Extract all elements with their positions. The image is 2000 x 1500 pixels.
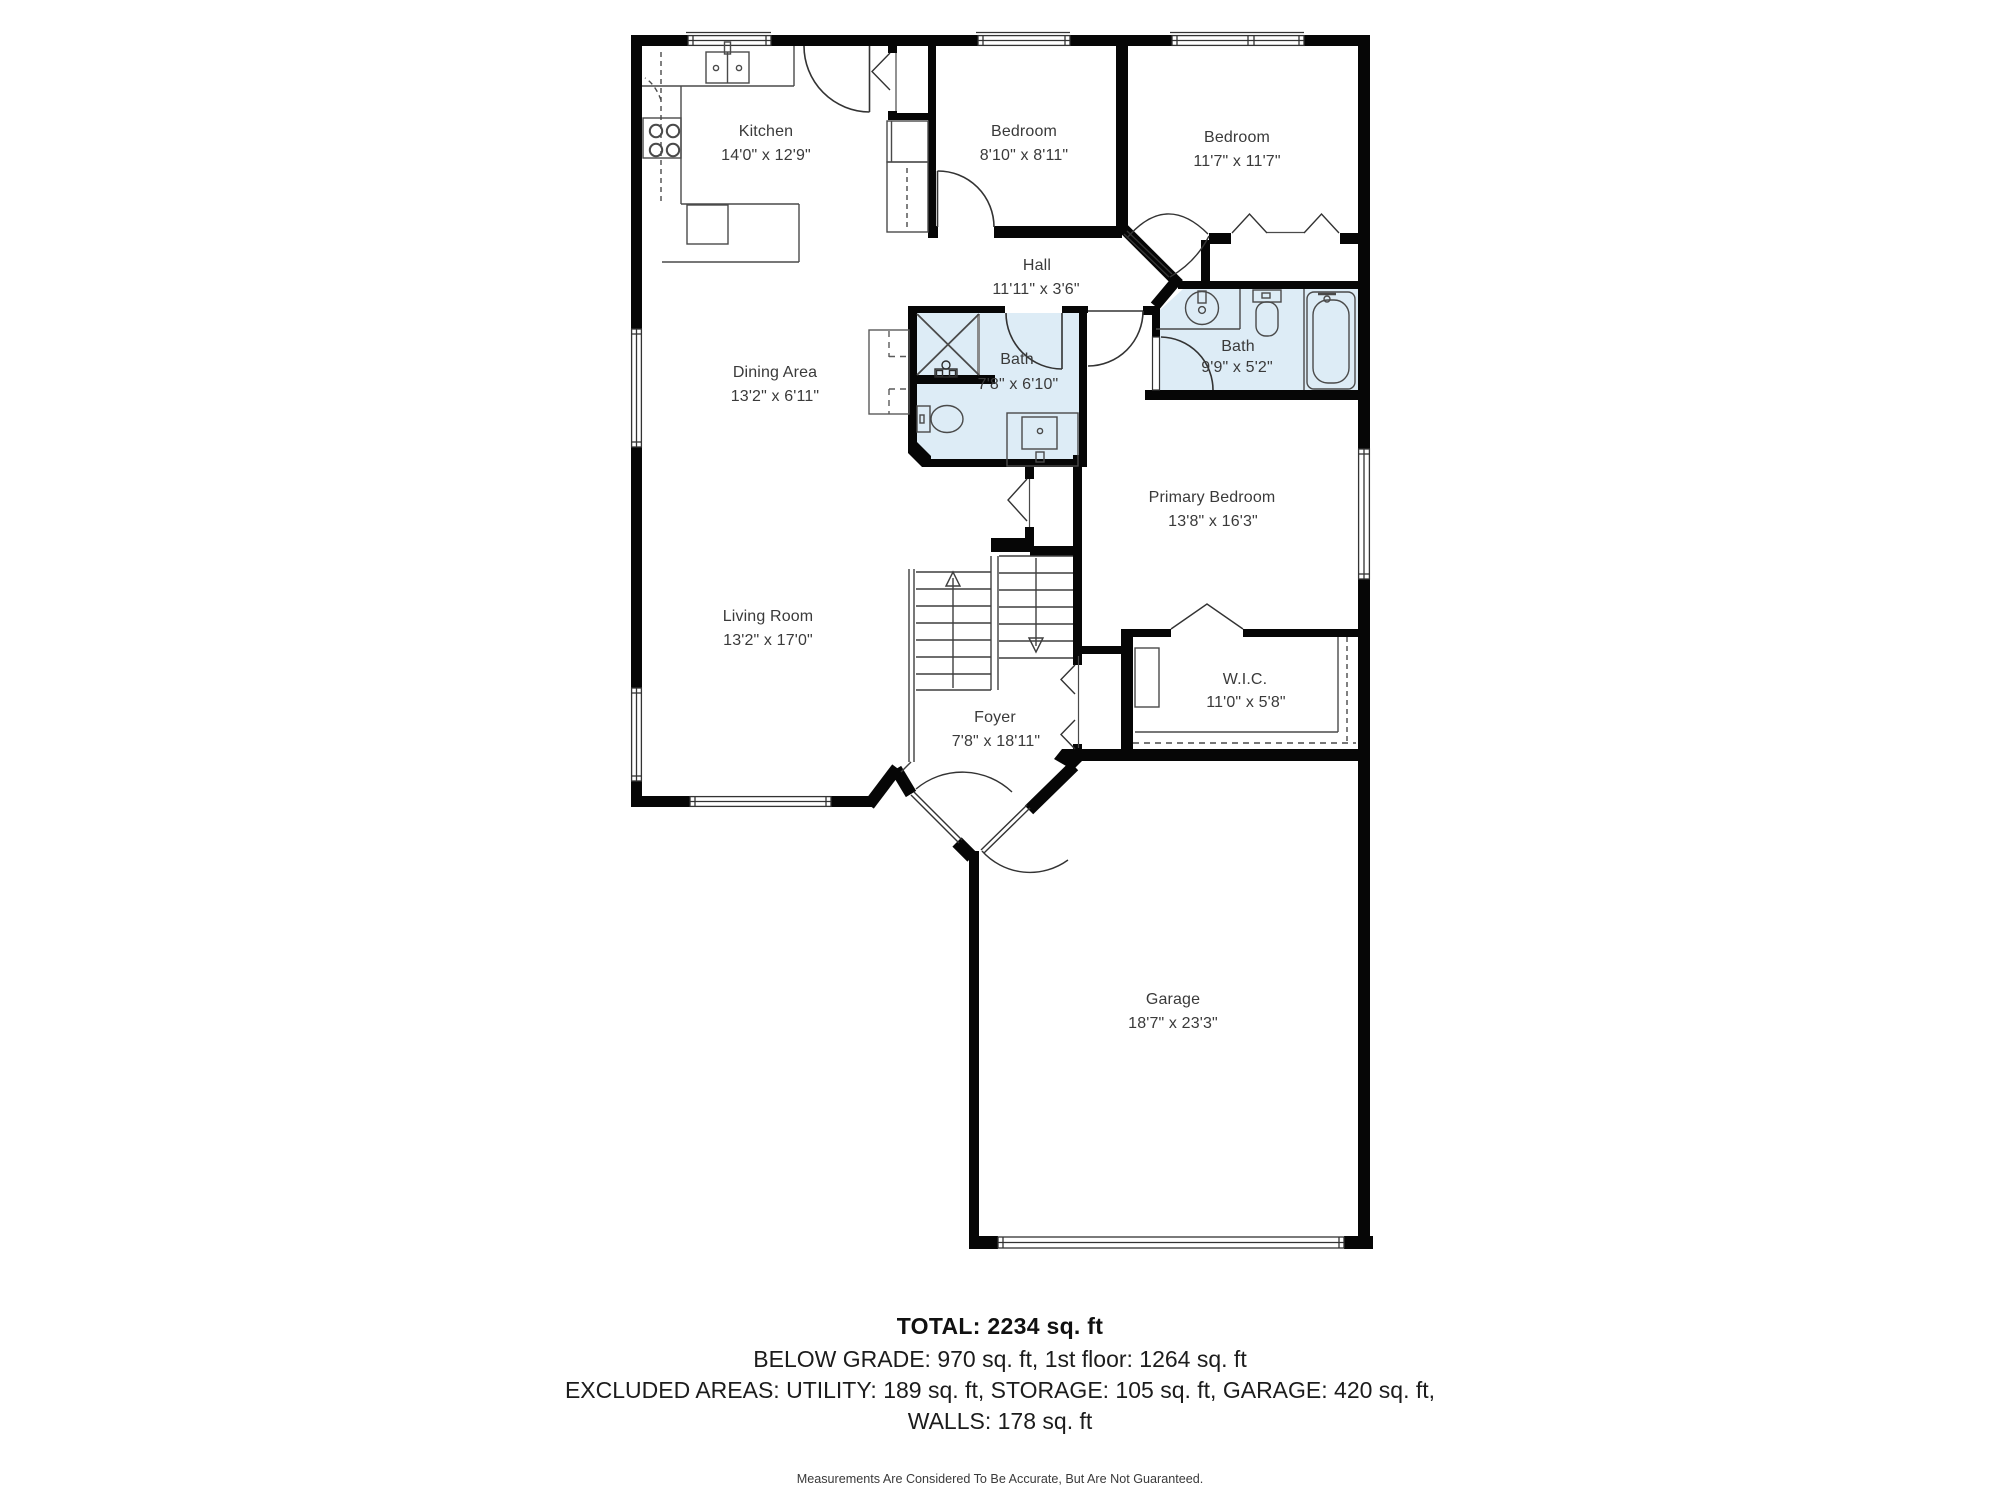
- svg-text:Measurements Are Considered To: Measurements Are Considered To Be Accura…: [797, 1472, 1204, 1486]
- svg-text:Bedroom: Bedroom: [1204, 129, 1270, 146]
- svg-text:7'8" x 6'10": 7'8" x 6'10": [978, 376, 1059, 393]
- svg-text:13'2" x 6'11": 13'2" x 6'11": [731, 388, 820, 405]
- svg-text:Foyer: Foyer: [974, 709, 1016, 726]
- svg-text:BELOW GRADE: 970 sq. ft, 1st f: BELOW GRADE: 970 sq. ft, 1st floor: 1264…: [753, 1346, 1247, 1372]
- svg-text:W.I.C.: W.I.C.: [1223, 671, 1267, 688]
- svg-text:8'10" x 8'11": 8'10" x 8'11": [980, 147, 1069, 164]
- svg-text:Garage: Garage: [1146, 991, 1200, 1008]
- svg-text:Living Room: Living Room: [723, 608, 814, 625]
- svg-text:18'7" x 23'3": 18'7" x 23'3": [1128, 1015, 1218, 1032]
- svg-text:Bedroom: Bedroom: [991, 123, 1057, 140]
- svg-text:9'9" x 5'2": 9'9" x 5'2": [1201, 359, 1273, 376]
- svg-text:Hall: Hall: [1023, 257, 1051, 274]
- svg-text:11'11" x 3'6": 11'11" x 3'6": [992, 281, 1079, 298]
- svg-text:Bath: Bath: [1221, 338, 1255, 355]
- svg-text:13'8" x 16'3": 13'8" x 16'3": [1168, 513, 1258, 530]
- svg-text:TOTAL: 2234 sq. ft: TOTAL: 2234 sq. ft: [897, 1313, 1104, 1339]
- svg-text:WALLS: 178 sq. ft: WALLS: 178 sq. ft: [908, 1408, 1093, 1434]
- svg-text:Bath: Bath: [1000, 351, 1034, 368]
- svg-text:13'2" x 17'0": 13'2" x 17'0": [723, 632, 813, 649]
- svg-text:14'0" x 12'9": 14'0" x 12'9": [721, 147, 811, 164]
- svg-text:7'8" x 18'11": 7'8" x 18'11": [952, 733, 1041, 750]
- svg-text:Primary Bedroom: Primary Bedroom: [1149, 489, 1276, 506]
- svg-text:EXCLUDED AREAS: UTILITY: 189 s: EXCLUDED AREAS: UTILITY: 189 sq. ft, STO…: [565, 1377, 1435, 1403]
- svg-text:Dining Area: Dining Area: [733, 364, 817, 381]
- svg-text:11'7" x 11'7": 11'7" x 11'7": [1193, 153, 1280, 170]
- svg-text:Kitchen: Kitchen: [739, 123, 793, 140]
- svg-text:11'0" x 5'8": 11'0" x 5'8": [1206, 694, 1285, 711]
